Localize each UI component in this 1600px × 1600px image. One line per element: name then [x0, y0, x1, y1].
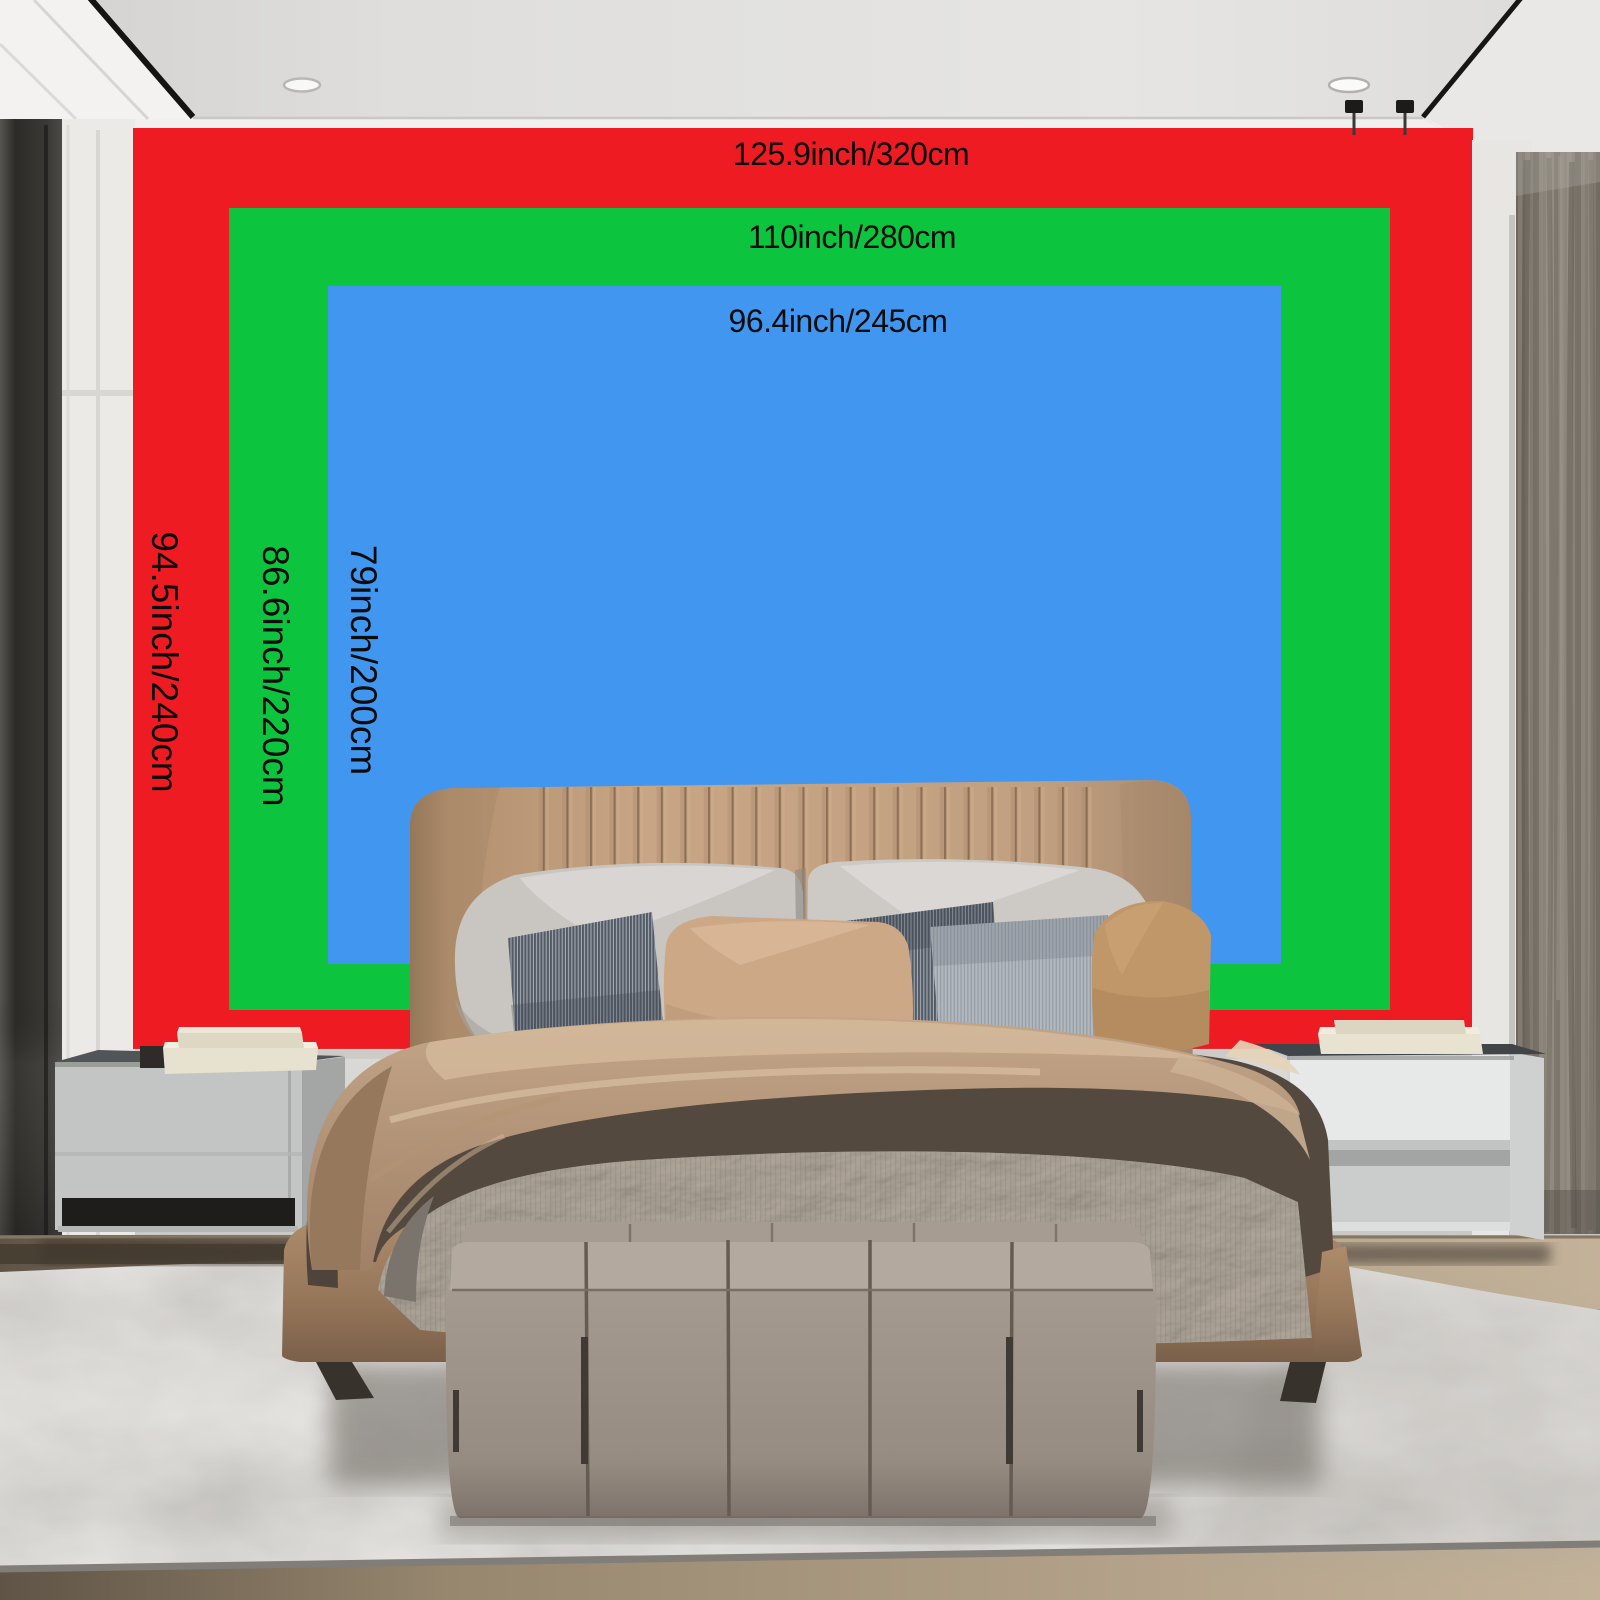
svg-text:94.5inch/240cm: 94.5inch/240cm [144, 531, 185, 792]
svg-text:96.4inch/245cm: 96.4inch/245cm [729, 303, 948, 339]
svg-text:79inch/200cm: 79inch/200cm [343, 545, 384, 775]
svg-text:125.9inch/320cm: 125.9inch/320cm [733, 136, 969, 172]
svg-text:110inch/280cm: 110inch/280cm [748, 219, 956, 255]
svg-text:86.6inch/220cm: 86.6inch/220cm [255, 545, 296, 806]
